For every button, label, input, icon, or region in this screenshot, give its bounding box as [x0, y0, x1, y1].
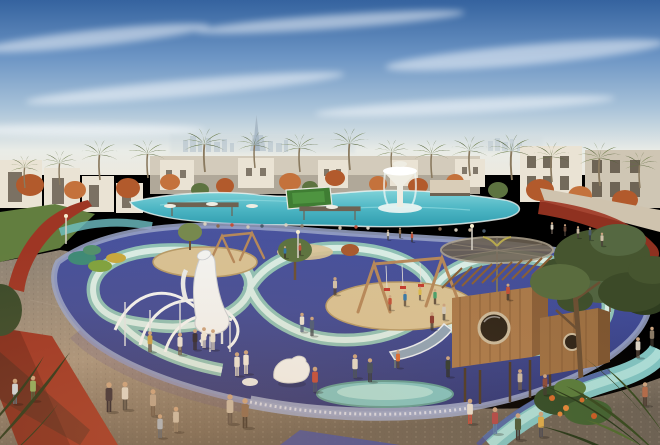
golden-hour-glow — [0, 200, 660, 445]
park-rendering-canvas — [0, 0, 660, 445]
rendered-park-image — [0, 0, 660, 445]
